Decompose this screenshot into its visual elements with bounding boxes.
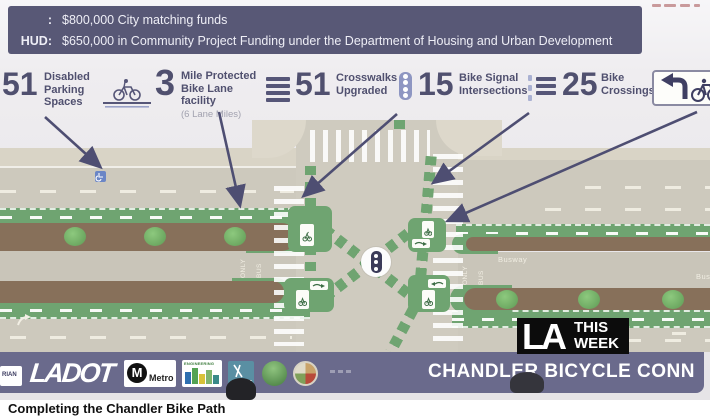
- metro-logo: M Metro: [124, 360, 176, 387]
- road-marking-only: ONLY: [240, 259, 247, 278]
- stat-value-bike-lane-miles: 3: [155, 65, 175, 101]
- skyline-bar: [199, 374, 205, 384]
- road-marking-bus: BUS: [256, 263, 263, 278]
- presentation-slide-photo: : $800,000 City matching funds HUD: $650…: [0, 0, 710, 400]
- skyline-bar: [206, 370, 212, 384]
- crosswalk-north: [310, 130, 430, 162]
- tree: [496, 290, 518, 309]
- skyline-bar: [213, 375, 219, 384]
- parks-logo: [262, 361, 287, 386]
- stat-value-bike-crossings: 25: [562, 68, 598, 100]
- stat-value-bike-signals: 15: [418, 68, 454, 100]
- ladot-logo: LADOT: [28, 358, 114, 389]
- stat-sublabel-lane-miles: (6 Lane Miles): [181, 109, 241, 120]
- la-this-week-la: LA: [522, 316, 564, 358]
- road-westbound-left: [0, 314, 302, 352]
- road-label-busway: Busway: [498, 255, 527, 264]
- lane-line: [585, 186, 710, 189]
- partial-logo-text: RIAN: [2, 372, 17, 378]
- city-seal-logo: [293, 361, 318, 386]
- tree: [224, 227, 246, 246]
- funding-text-hud: $650,000 in Community Project Funding un…: [62, 31, 612, 51]
- stat-label-bike-crossings: Bike Crossings: [601, 72, 653, 97]
- caption-text: Completing the Chandler Bike Path: [8, 401, 225, 416]
- tree: [578, 290, 600, 309]
- funding-text-city: $800,000 City matching funds: [62, 10, 227, 30]
- skyline-bar: [192, 368, 198, 384]
- la-this-week-this: THIS: [574, 319, 608, 336]
- stat-label-disabled-parking: Disabled Parking Spaces: [44, 71, 102, 109]
- metro-wordmark: Metro: [149, 373, 174, 383]
- article-image-block: : $800,000 City matching funds HUD: $650…: [0, 0, 710, 418]
- road-label-busway-clipped: Busway: [696, 272, 710, 281]
- crosswalk-lines-icon: [266, 77, 290, 102]
- bike-crossing-bars-icon: [536, 77, 556, 95]
- funding-label-city: :: [8, 10, 52, 30]
- turn-arrow-marking: [16, 314, 32, 326]
- road-marking-only: ONLY: [462, 266, 469, 285]
- metro-m-mark: M: [127, 363, 147, 383]
- stat-label-bike-signals: Bike Signal Intersections: [459, 72, 525, 97]
- stat-label-bike-lane-text: Mile Protected Bike Lane facility: [181, 70, 256, 107]
- audience-silhouette: [226, 378, 256, 400]
- tree: [64, 227, 86, 246]
- slide-title: CHANDLER BICYCLE CONN: [428, 361, 695, 383]
- bike-crossing-north-stub: [394, 120, 405, 134]
- intersection-bike-signal-icon: [361, 247, 391, 277]
- lane-line: [672, 332, 686, 335]
- corner-island-nw: [288, 206, 332, 252]
- stat-label-crosswalks: Crosswalks Upgraded: [336, 72, 398, 97]
- road-eastbound-right: [458, 160, 710, 224]
- funding-line-city: : $800,000 City matching funds: [8, 10, 642, 30]
- funding-label-hud: HUD:: [8, 31, 52, 51]
- image-caption: Completing the Chandler Bike Path: [0, 400, 710, 418]
- road-busway-right: [458, 252, 710, 288]
- protected-bike-lane-icon: [103, 78, 151, 108]
- bike-signal-icon: [399, 72, 412, 100]
- stat-value-disabled-parking: 51: [2, 68, 38, 100]
- funding-banner: : $800,000 City matching funds HUD: $650…: [8, 6, 642, 54]
- la-this-week-week: WEEK: [574, 335, 619, 352]
- lane-line: [10, 336, 292, 339]
- small-mark: [330, 370, 335, 373]
- small-mark: [338, 370, 343, 373]
- skyline-bar: [185, 372, 191, 384]
- stat-label-bike-lane: Mile Protected Bike Lane facility (6 Lan…: [181, 70, 263, 121]
- median-left-lower: [0, 281, 284, 303]
- corner-island-sw: [284, 278, 334, 312]
- partial-logo: RIAN: [0, 366, 22, 386]
- corner-island-se: [408, 275, 450, 312]
- bike-crossing-lines-icon: [528, 75, 532, 101]
- disabled-parking-sign: [95, 171, 106, 182]
- road-marking-bus: BUS: [478, 270, 485, 285]
- engineering-logo-text: ENGINEERING: [184, 361, 214, 366]
- audience-silhouette: [510, 372, 544, 393]
- small-mark: [346, 370, 351, 373]
- funding-line-hud: HUD: $650,000 in Community Project Fundi…: [8, 31, 642, 51]
- stats-row: 51 Disabled Parking Spaces 3 Mile Protec…: [0, 60, 710, 120]
- la-this-week-logo: LA THIS WEEK: [517, 318, 629, 354]
- tree: [662, 290, 684, 309]
- corner-island-ne: [408, 218, 446, 252]
- median-right-upper: [466, 237, 710, 251]
- left-turn-with-bike-sign-icon: [652, 70, 710, 106]
- tree: [144, 227, 166, 246]
- stat-value-crosswalks: 51: [295, 68, 331, 100]
- lane-line: [0, 190, 294, 193]
- slide-footer: RIAN LADOT M Metro ENGINEERING LIGHT: [0, 352, 704, 393]
- engineering-logo: ENGINEERING: [182, 360, 222, 387]
- lane-line: [545, 208, 710, 211]
